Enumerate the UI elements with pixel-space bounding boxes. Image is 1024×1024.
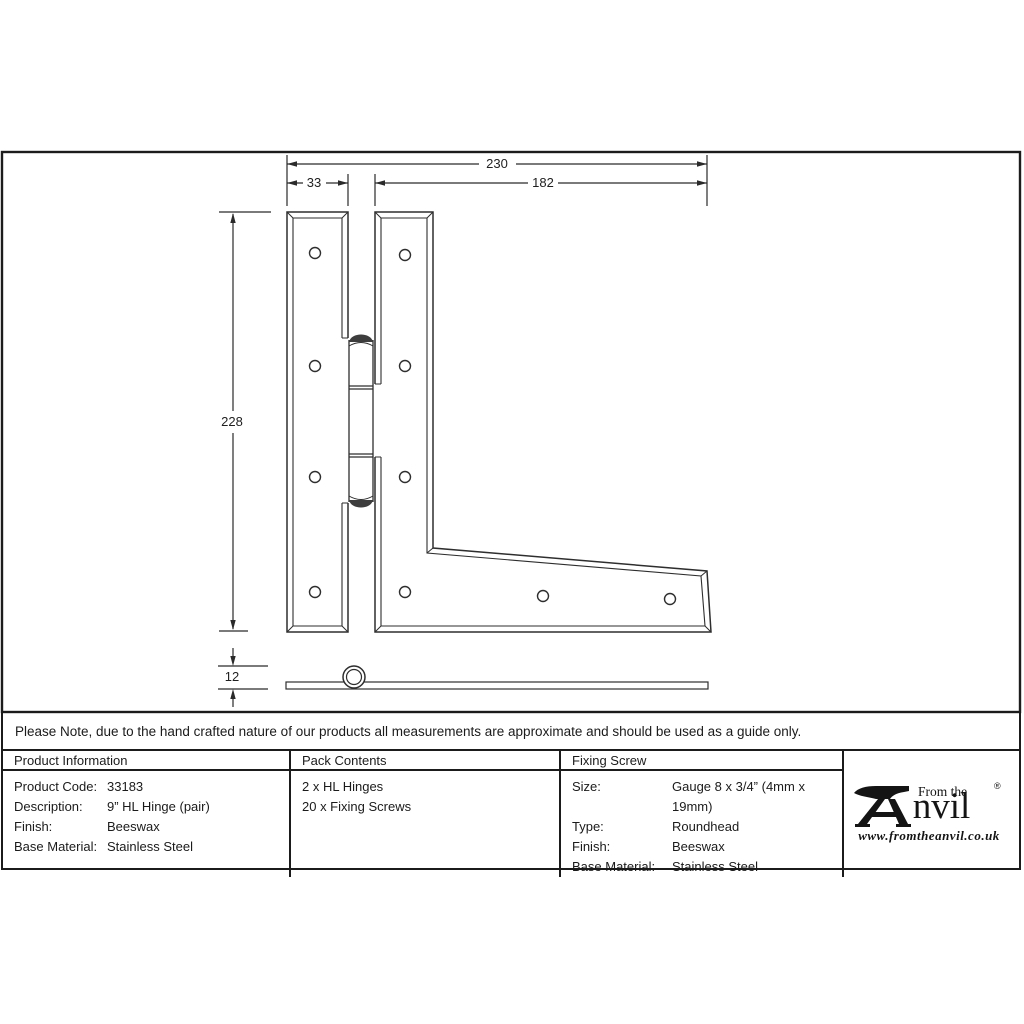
- row-value: Beeswax: [107, 817, 289, 837]
- brand-website: www.fromtheanvil.co.uk: [855, 828, 1003, 844]
- right-leaf-bevel: [381, 218, 705, 626]
- pack-contents-item: 20 x Fixing Screws: [302, 797, 559, 817]
- drawing-frame: [2, 152, 1020, 712]
- pack-contents-item: 2 x HL Hinges: [302, 777, 559, 797]
- table-row: Description: 9” HL Hinge (pair): [14, 797, 289, 817]
- row-label: Finish:: [14, 817, 107, 837]
- row-label: Type:: [572, 817, 672, 837]
- pin-top-cap: [349, 335, 373, 343]
- row-label: Base Material:: [572, 857, 672, 877]
- dimension-extension-lines: [218, 155, 707, 689]
- row-label: Description:: [14, 797, 107, 817]
- table-row: Finish: Beeswax: [572, 837, 842, 857]
- specification-table: Product Information Pack Contents Fixing…: [1, 751, 1021, 870]
- table-row: Base Material: Stainless Steel: [14, 837, 289, 857]
- table-row: Size: Gauge 8 x 3/4” (4mm x 19mm): [572, 777, 842, 817]
- pack-contents-cell: 2 x HL Hinges 20 x Fixing Screws: [291, 771, 561, 877]
- dimension-total-width-label: 230: [486, 156, 508, 171]
- screw-holes: [310, 248, 676, 605]
- dimension-height-label: 228: [221, 414, 243, 429]
- dimension-arrowheads: [230, 161, 707, 699]
- pin-barrel: [349, 340, 373, 502]
- measurement-note-text: Please Note, due to the hand crafted nat…: [15, 724, 801, 739]
- row-value: 33183: [107, 777, 289, 797]
- registered-trademark-symbol: ®: [994, 781, 1001, 791]
- product-information-header: Product Information: [3, 751, 291, 771]
- measurement-note-bar: Please Note, due to the hand crafted nat…: [1, 711, 1021, 751]
- pin-bottom-cap: [349, 500, 373, 508]
- hinge-side-view: [286, 666, 708, 689]
- pin-barrel-arcs: [349, 343, 373, 500]
- row-value: 9” HL Hinge (pair): [107, 797, 289, 817]
- row-value: Stainless Steel: [672, 857, 842, 877]
- right-leaf-outline: [375, 212, 711, 632]
- table-row: Type: Roundhead: [572, 817, 842, 837]
- row-label: Size:: [572, 777, 672, 817]
- pack-contents-header: Pack Contents: [291, 751, 561, 771]
- product-spec-sheet: 230 33 182 228 12: [0, 0, 1024, 1024]
- table-row: Base Material: Stainless Steel: [572, 857, 842, 877]
- dimension-left-leaf-width-label: 33: [307, 175, 321, 190]
- left-leaf-bevel: [293, 218, 342, 626]
- row-value: Stainless Steel: [107, 837, 289, 857]
- row-label: Product Code:: [14, 777, 107, 797]
- table-row: Product Code: 33183: [14, 777, 289, 797]
- left-leaf-outline: [287, 212, 348, 632]
- row-label: Base Material:: [14, 837, 107, 857]
- row-value: Roundhead: [672, 817, 842, 837]
- brand-logo: From the ® Anvil www.fromtheanvil.co.uk: [854, 782, 1004, 844]
- fixing-screw-header: Fixing Screw: [561, 751, 844, 771]
- product-information-cell: Product Code: 33183 Description: 9” HL H…: [3, 771, 291, 877]
- row-label: Finish:: [572, 837, 672, 857]
- dimension-labels: 230 33 182 228 12: [221, 156, 554, 684]
- fixing-screw-cell: Size: Gauge 8 x 3/4” (4mm x 19mm) Type: …: [561, 771, 844, 877]
- brand-logo-cell: From the ® Anvil www.fromtheanvil.co.uk: [844, 751, 1019, 877]
- dimension-right-leaf-width-label: 182: [532, 175, 554, 190]
- row-value: Gauge 8 x 3/4” (4mm x 19mm): [672, 777, 842, 817]
- dimension-thickness-label: 12: [225, 669, 239, 684]
- table-row: Finish: Beeswax: [14, 817, 289, 837]
- hinge-front-view: [287, 212, 711, 632]
- right-leaf-corner-miters: [375, 212, 711, 632]
- brand-name: Anvil: [856, 788, 970, 825]
- left-leaf-corner-miters: [287, 212, 348, 632]
- row-value: Beeswax: [672, 837, 842, 857]
